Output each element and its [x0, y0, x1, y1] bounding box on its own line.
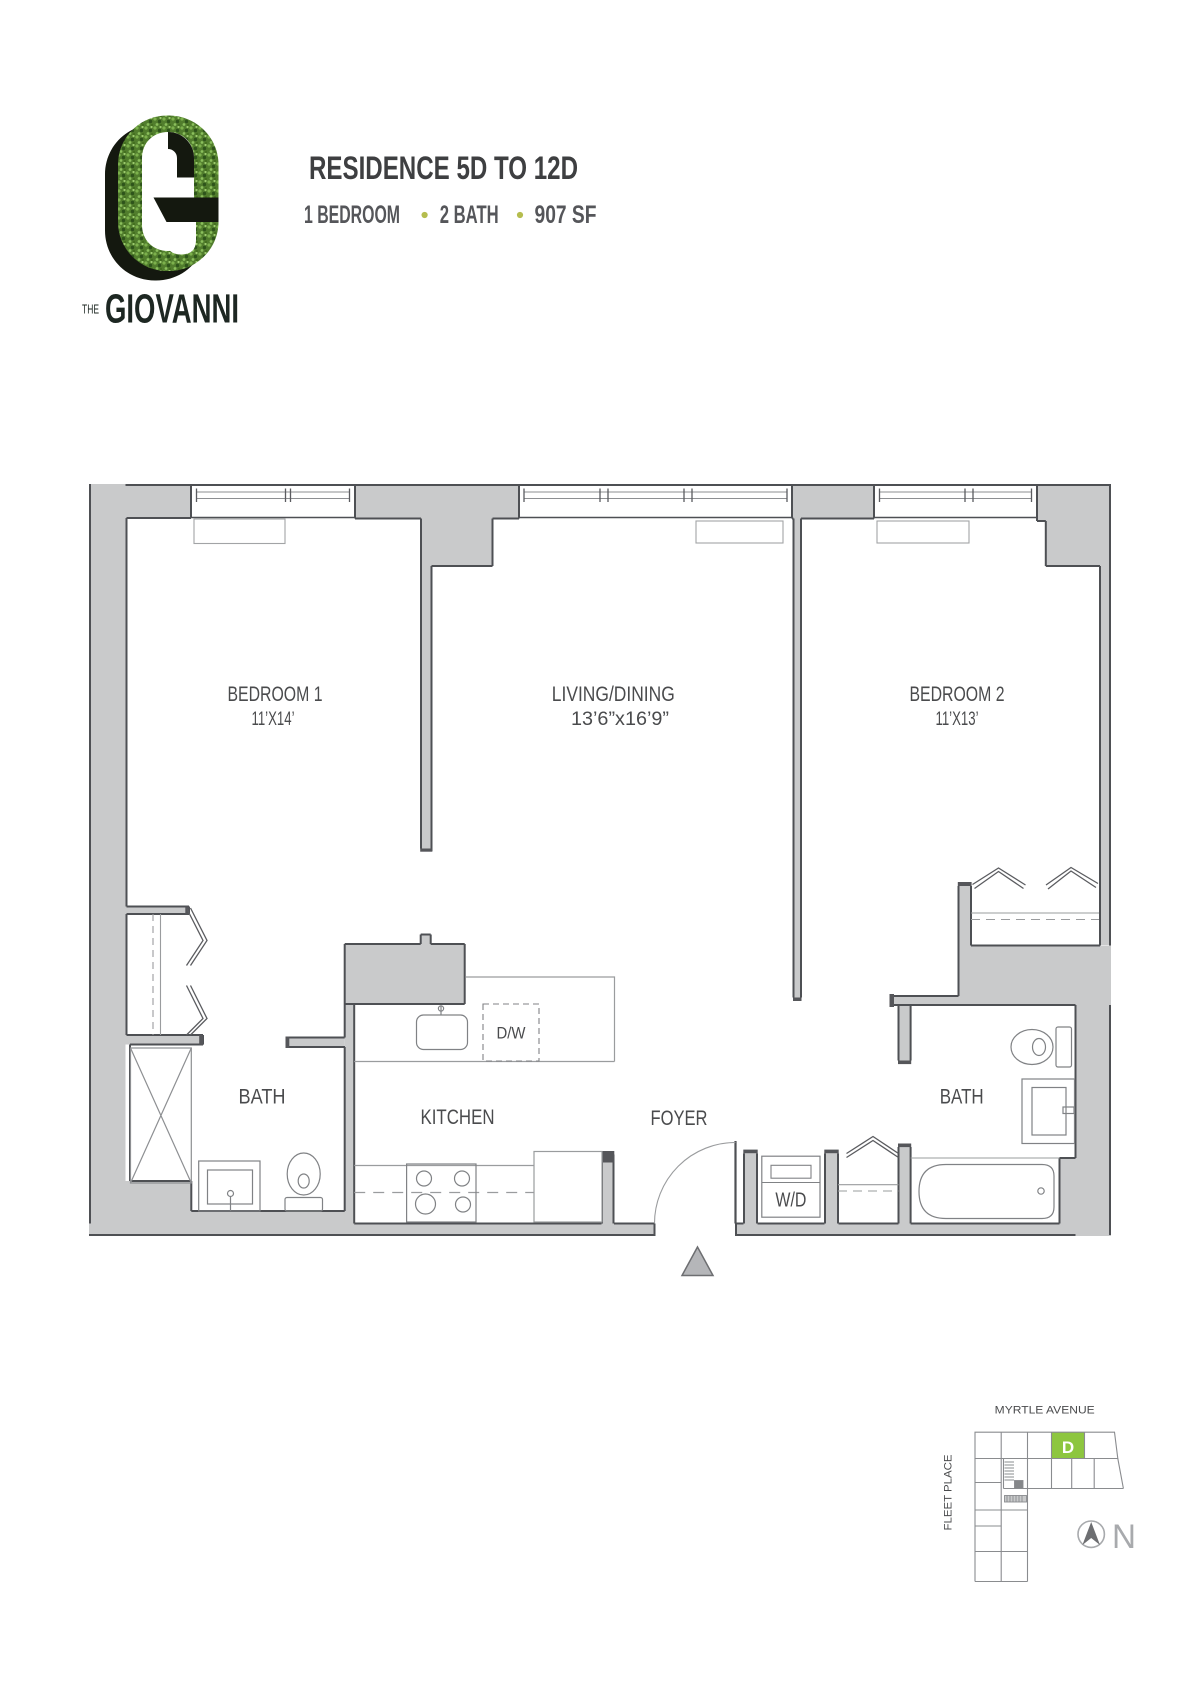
- svg-text:D: D: [1062, 1438, 1074, 1457]
- svg-text:11’X14’: 11’X14’: [252, 708, 295, 730]
- svg-text:11’X13’: 11’X13’: [936, 708, 979, 730]
- svg-text:FLEET PLACE: FLEET PLACE: [943, 1455, 955, 1531]
- svg-text:2 BATH: 2 BATH: [440, 201, 499, 229]
- svg-text:D/W: D/W: [497, 1025, 526, 1043]
- svg-text:MYRTLE AVENUE: MYRTLE AVENUE: [995, 1405, 1095, 1417]
- svg-text:FOYER: FOYER: [651, 1106, 708, 1130]
- svg-text:KITCHEN: KITCHEN: [421, 1105, 495, 1129]
- svg-text:907 SF: 907 SF: [535, 201, 597, 229]
- svg-text:BATH: BATH: [940, 1085, 984, 1109]
- svg-text:RESIDENCE 5D TO 12D: RESIDENCE 5D TO 12D: [309, 150, 578, 186]
- svg-text:BEDROOM 2: BEDROOM 2: [910, 682, 1005, 706]
- svg-text:BATH: BATH: [239, 1084, 286, 1108]
- svg-text:BEDROOM 1: BEDROOM 1: [228, 682, 323, 706]
- svg-text:THE: THE: [82, 302, 99, 317]
- svg-text:W/D: W/D: [775, 1189, 806, 1212]
- svg-text:1 BEDROOM: 1 BEDROOM: [304, 201, 400, 229]
- svg-text:13’6”x16’9”: 13’6”x16’9”: [571, 708, 669, 730]
- svg-text:GIOVANNI: GIOVANNI: [105, 286, 239, 332]
- svg-text:LIVING/DINING: LIVING/DINING: [552, 682, 675, 706]
- svg-text:N: N: [1112, 1518, 1136, 1556]
